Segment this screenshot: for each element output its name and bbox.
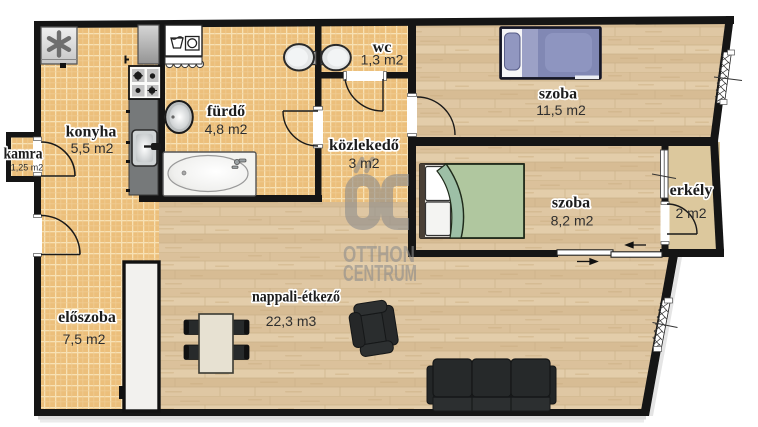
svg-text:2 m2: 2 m2 — [675, 205, 706, 221]
svg-text:fürdő: fürdő — [207, 103, 245, 120]
svg-text:7,5 m2: 7,5 m2 — [63, 331, 106, 347]
svg-text:konyha: konyha — [66, 124, 117, 141]
svg-text:5,5 m2: 5,5 m2 — [71, 140, 114, 156]
svg-text:szoba: szoba — [552, 195, 590, 212]
svg-text:erkély: erkély — [670, 182, 713, 199]
svg-text:szoba: szoba — [539, 86, 577, 103]
svg-text:előszoba: előszoba — [58, 309, 116, 326]
svg-text:3 m2: 3 m2 — [348, 155, 379, 171]
svg-text:nappali-étkező: nappali-étkező — [252, 289, 340, 306]
svg-text:CENTRUM: CENTRUM — [343, 260, 417, 286]
svg-text:4,8 m2: 4,8 m2 — [205, 121, 248, 137]
svg-text:1,25 m2: 1,25 m2 — [11, 163, 44, 173]
svg-text:közlekedő: közlekedő — [329, 137, 399, 154]
svg-text:22,3 m3: 22,3 m3 — [266, 313, 317, 329]
svg-text:11,5 m2: 11,5 m2 — [536, 102, 586, 118]
svg-text:kamra: kamra — [4, 146, 43, 163]
svg-text:1,3 m2: 1,3 m2 — [361, 52, 404, 68]
svg-text:8,2 m2: 8,2 m2 — [551, 213, 594, 229]
